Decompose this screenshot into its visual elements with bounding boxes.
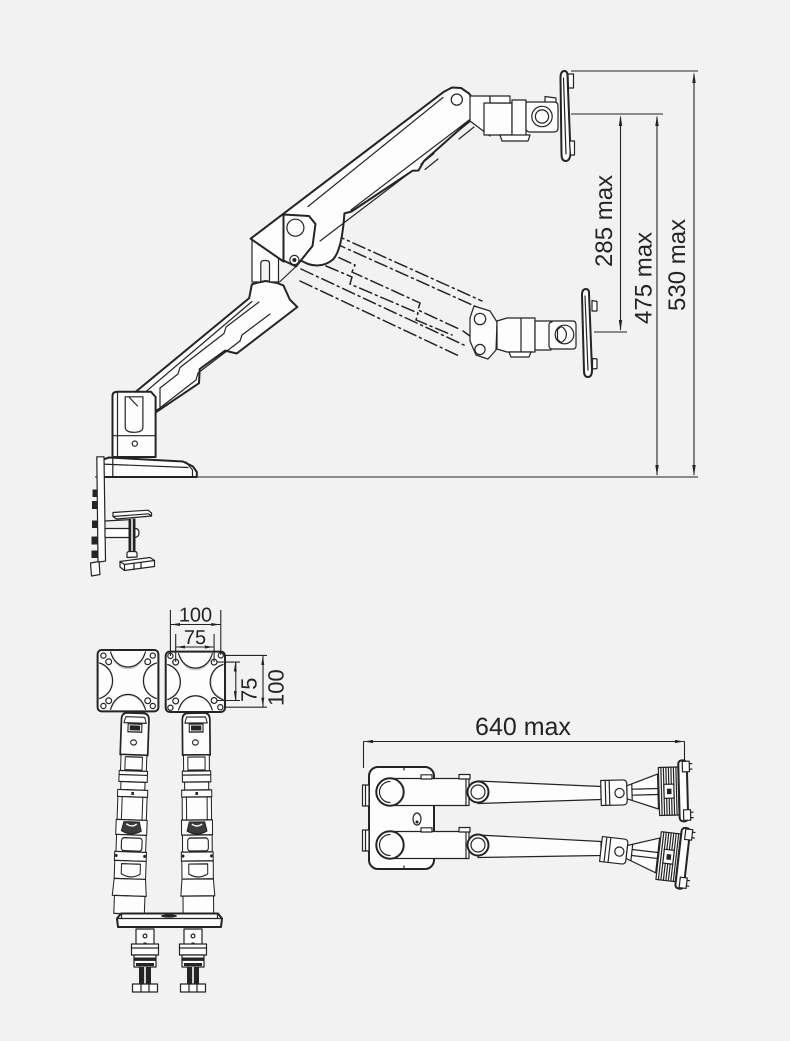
svg-text:75: 75 [184, 627, 206, 649]
svg-text:640 max: 640 max [475, 713, 571, 741]
svg-text:475 max: 475 max [631, 232, 658, 324]
svg-text:530 max: 530 max [664, 219, 691, 311]
svg-text:100: 100 [179, 605, 212, 627]
svg-text:100: 100 [264, 669, 289, 706]
svg-text:75: 75 [237, 678, 262, 702]
svg-text:285 max: 285 max [591, 175, 618, 267]
